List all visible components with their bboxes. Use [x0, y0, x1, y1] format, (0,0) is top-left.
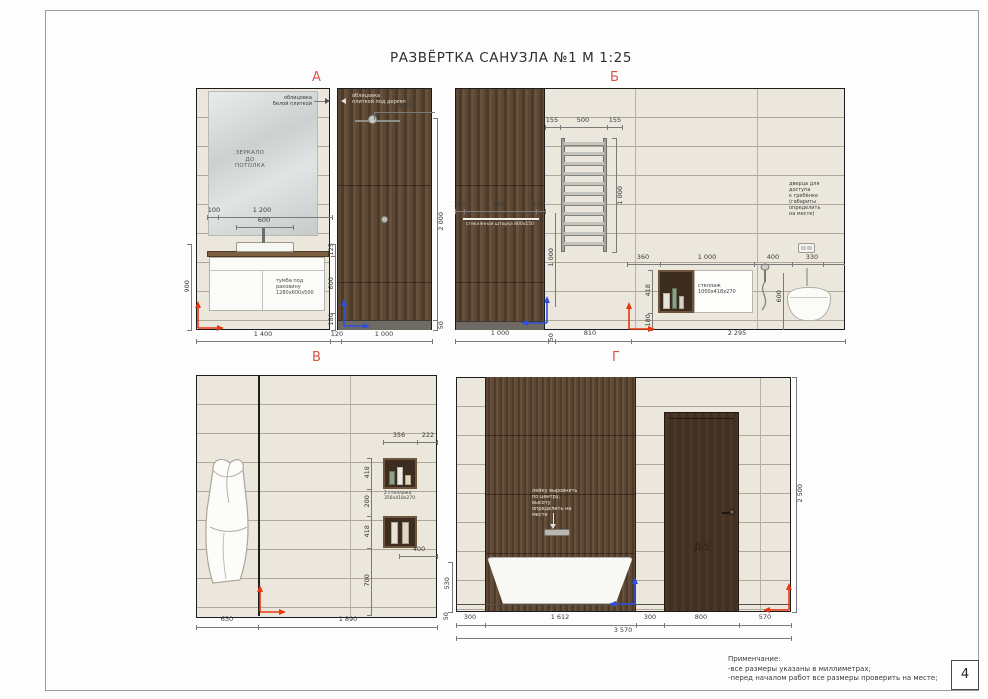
toilet-water-line — [806, 268, 808, 286]
shower-arm-icon — [355, 120, 400, 122]
dim-label: 1 000 — [548, 235, 555, 279]
dim-label: 1 000 — [478, 330, 522, 337]
dim-label: 1 400 — [241, 331, 285, 338]
axis-blue-icon — [339, 296, 373, 330]
dim-label: 222 — [406, 432, 450, 439]
dim-line — [236, 227, 294, 228]
dim-label: 2 500 — [797, 471, 804, 515]
dim-label: 100 — [192, 207, 236, 214]
hygienic-shower-icon — [752, 262, 776, 314]
dim-label: 2 295 — [715, 330, 759, 337]
vanity-door-divider — [262, 270, 263, 312]
axis-red-icon — [624, 299, 658, 333]
dim-label: 400 — [397, 546, 441, 553]
niche-shelf — [383, 458, 417, 489]
dim-label: 570 — [743, 614, 787, 621]
dim-line — [437, 118, 438, 330]
axis-blue-icon — [606, 574, 640, 608]
faucet-icon — [262, 228, 265, 243]
view-g-label: Г — [612, 350, 620, 365]
dim-line — [196, 341, 432, 342]
dim-label: 50 — [438, 303, 445, 347]
dim-label: 330 — [790, 254, 834, 261]
drawing-title: РАЗВЁРТКА САНУЗЛА №1 М 1:25 — [45, 50, 977, 66]
notes-lines: -все размеры указаны в миллиметрах; -пер… — [728, 665, 938, 683]
drawing-sheet: РАЗВЁРТКА САНУЗЛА №1 М 1:25 А Б В Г ЗЕРК… — [0, 0, 988, 699]
shelf-note: стеллаж 1000х418х270 — [698, 283, 752, 295]
dim-label: 1 000 — [362, 331, 406, 338]
tile-joint — [635, 89, 636, 329]
dim-line — [452, 562, 453, 612]
vanity-drawer-line — [210, 270, 324, 271]
dim-label: 100 — [517, 201, 561, 208]
axis-blue-icon — [518, 293, 552, 327]
dim-label: 800 — [679, 614, 723, 621]
dim-label: 500 — [382, 102, 426, 109]
dim-label: 300 — [628, 614, 672, 621]
bathrobe-sketch — [200, 455, 262, 593]
dim-label: 800 — [478, 201, 522, 208]
page-number: 4 — [951, 660, 979, 690]
shower-mixer-icon — [381, 216, 388, 223]
dim-line — [191, 244, 192, 330]
dim-label: 1 000 — [685, 254, 729, 261]
dim-label: 3 570 — [601, 627, 645, 634]
glass-screen-edge — [463, 218, 539, 220]
dim-line — [455, 341, 845, 342]
dim-line — [383, 442, 437, 443]
shower-head-icon — [368, 115, 377, 124]
dim-label: 400 — [751, 254, 795, 261]
glass-note: стеклянная шторка 800х150 — [458, 222, 542, 227]
towel-radiator — [559, 138, 609, 252]
vanity-note: тумба под раковину 1280х600х500 — [276, 278, 324, 296]
dim-label: 1 200 — [240, 207, 284, 214]
annotation-spout: лейку выровнять по центру, высоту опреде… — [532, 488, 578, 518]
dim-line — [456, 638, 791, 639]
annotation-access-door: дверца для доступа к гребёнке (габариты … — [789, 181, 841, 217]
door-label: Д-5 — [684, 543, 720, 553]
dim-line — [455, 211, 545, 212]
dim-label: 630 — [205, 616, 249, 623]
notes-heading: Применчание: — [728, 655, 781, 664]
dim-line — [616, 138, 617, 252]
dim-line — [374, 112, 375, 120]
niche-shelf — [383, 516, 417, 548]
dim-line — [783, 273, 784, 330]
tile-joint — [350, 376, 351, 616]
dim-label: 120 — [315, 331, 359, 338]
dim-label: 1 612 — [538, 614, 582, 621]
basin — [236, 242, 294, 252]
annotation-white-tile: облицовка белой плиткой — [252, 95, 312, 107]
view-v-label: В — [312, 350, 321, 365]
dim-line — [796, 377, 797, 612]
dim-line — [545, 127, 622, 128]
dim-label: 900 — [184, 264, 191, 308]
leader-arrow-icon — [341, 98, 346, 104]
bath-filler-plate — [544, 529, 570, 536]
axis-red-icon — [193, 298, 227, 332]
niche-shelf — [658, 270, 694, 313]
view-a-wood-wall — [337, 88, 432, 330]
dim-line — [374, 112, 435, 113]
dim-label: 600 — [242, 217, 286, 224]
dim-label: 100 — [438, 201, 482, 208]
dim-line — [555, 213, 556, 307]
door-d5 — [664, 412, 739, 612]
dim-label: 600 — [776, 274, 783, 318]
view-a-label: А — [312, 70, 321, 85]
axis-red-icon — [760, 580, 794, 614]
dim-label: 1 000 — [617, 173, 624, 217]
view-b-label: Б — [610, 70, 619, 85]
flush-plate — [798, 243, 815, 253]
door-handle-icon — [729, 509, 735, 515]
dim-label: 300 — [448, 614, 492, 621]
dim-label: 810 — [568, 330, 612, 337]
dim-label: 700 — [364, 558, 371, 602]
mirror-note: ЗЕРКАЛО ДО ПОТОЛКА — [228, 150, 272, 170]
dim-label: 155 — [593, 117, 637, 124]
dim-line — [371, 458, 372, 615]
shelf-note: 2 стеллажа 356х418х270 — [384, 491, 436, 502]
dim-line — [399, 556, 437, 557]
leader-arrow-icon — [325, 98, 330, 104]
axis-red-icon — [255, 582, 289, 616]
dim-label: 1 890 — [326, 616, 370, 623]
dim-line — [196, 627, 437, 628]
tile-joint — [760, 378, 761, 611]
dim-label: 360 — [621, 254, 665, 261]
